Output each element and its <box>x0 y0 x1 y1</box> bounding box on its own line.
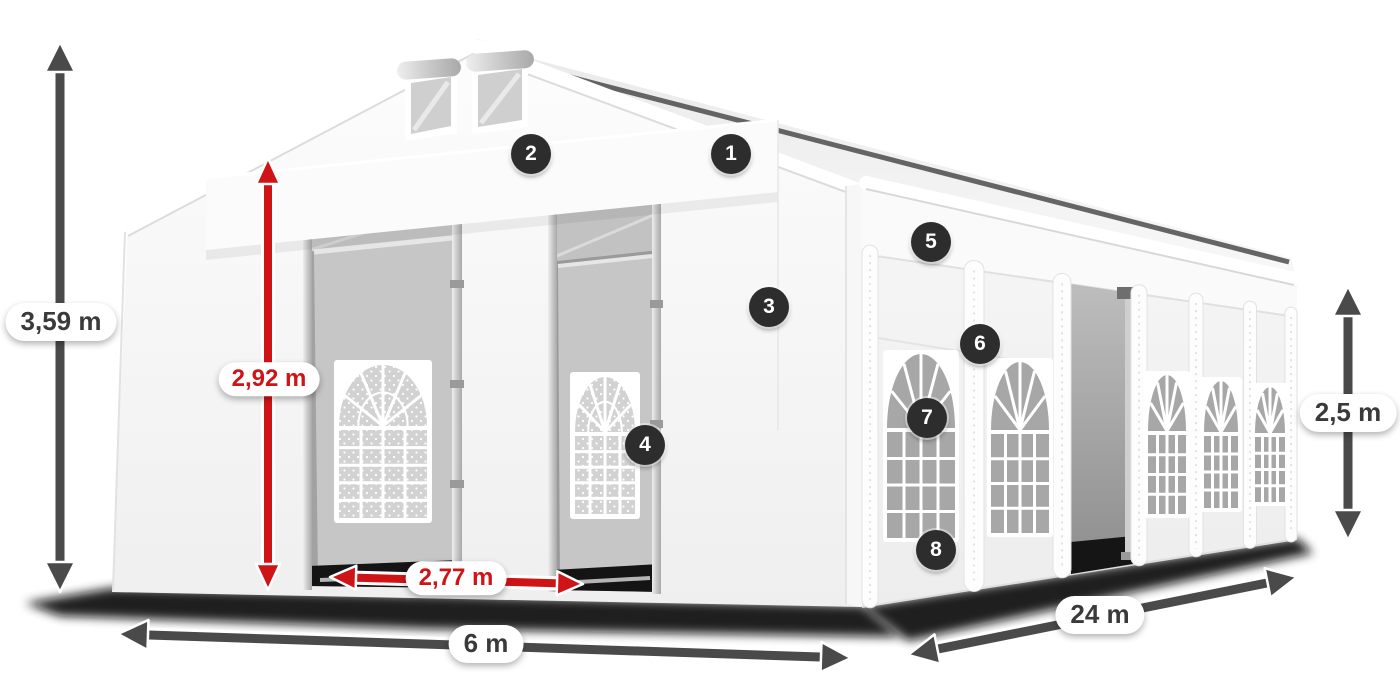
tent-dimension-diagram: 3,59 m2,92 m2,77 m6 m2,5 m24 m12345678 <box>0 0 1400 700</box>
part-marker-3: 3 <box>749 287 789 327</box>
dimension-label-entrance-width: 2,77 m <box>406 561 507 595</box>
part-marker-6: 6 <box>960 324 1000 364</box>
side-doorway <box>1071 284 1136 574</box>
part-marker-2: 2 <box>511 134 551 174</box>
part-marker-1: 1 <box>711 134 751 174</box>
part-marker-8: 8 <box>916 530 956 570</box>
dimension-label-side-height: 2,5 m <box>1300 394 1397 432</box>
dimension-label-front-width: 6 m <box>449 625 524 663</box>
dimension-label-length: 24 m <box>1055 596 1144 634</box>
side-window <box>1200 377 1242 512</box>
dimension-label-entrance-height: 2,92 m <box>219 362 320 396</box>
dimension-label-total-height: 3,59 m <box>6 303 117 341</box>
part-marker-5: 5 <box>911 222 951 262</box>
side-window <box>1144 371 1190 518</box>
side-window <box>987 358 1053 537</box>
door-window <box>334 360 432 523</box>
tent-illustration <box>0 0 1400 700</box>
side-window <box>883 350 959 542</box>
side-window <box>1251 383 1289 506</box>
part-marker-4: 4 <box>625 425 665 465</box>
part-marker-7: 7 <box>907 398 947 438</box>
